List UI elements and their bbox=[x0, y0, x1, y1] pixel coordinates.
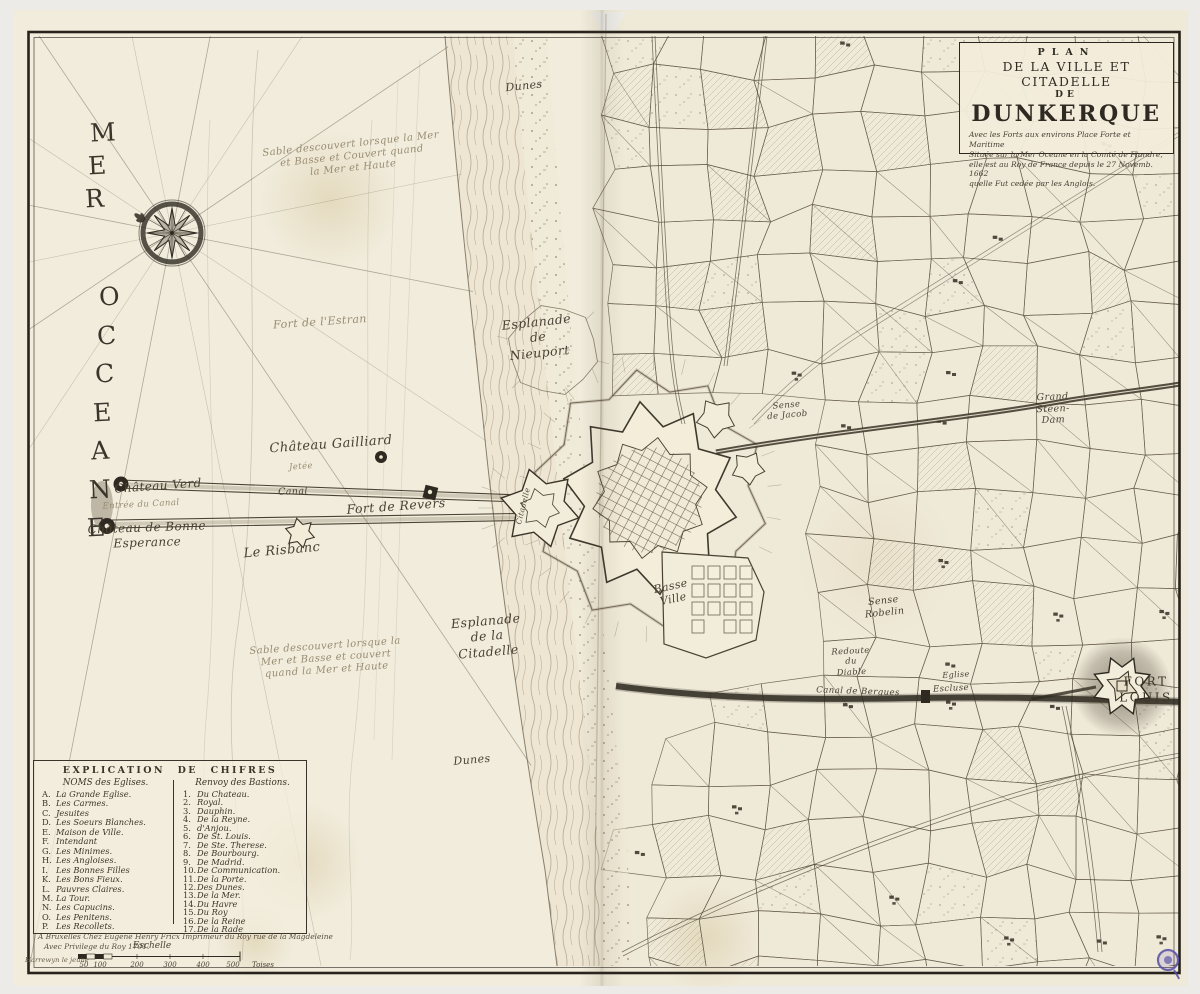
farm-building bbox=[792, 372, 797, 375]
farm-building bbox=[841, 424, 846, 427]
basse-ville-block bbox=[692, 584, 704, 597]
page-fold bbox=[580, 10, 624, 986]
farm-building bbox=[993, 236, 998, 239]
field-parcel bbox=[1191, 638, 1200, 693]
fort-louis bbox=[1072, 637, 1172, 737]
field-parcel bbox=[1190, 826, 1200, 877]
field-parcel bbox=[1190, 691, 1200, 726]
map-stage: MEROCCEANE DunesSable descouvert lorsque… bbox=[0, 0, 1200, 994]
farm-building bbox=[1159, 610, 1164, 613]
farm-building bbox=[1156, 935, 1161, 938]
basse-ville-block bbox=[692, 620, 704, 633]
farm-building bbox=[840, 41, 845, 44]
farm-building bbox=[1004, 936, 1009, 939]
farm-building bbox=[1050, 705, 1055, 708]
farm-building bbox=[1053, 613, 1058, 616]
basse-ville-block bbox=[724, 584, 736, 597]
farm-building bbox=[945, 662, 950, 665]
basse-ville-block bbox=[692, 566, 704, 579]
field-parcel bbox=[971, 488, 1033, 550]
field-parcel bbox=[1140, 82, 1198, 130]
basse-ville-block bbox=[708, 584, 720, 597]
basse-ville-block bbox=[740, 602, 752, 615]
farm-building bbox=[843, 703, 848, 706]
basse-ville-block bbox=[692, 602, 704, 615]
basse-ville-block bbox=[724, 602, 736, 615]
basse-ville-block bbox=[708, 602, 720, 615]
farm-building bbox=[1102, 142, 1107, 145]
field-parcel bbox=[918, 442, 976, 492]
basse-ville-block bbox=[740, 584, 752, 597]
field-parcel bbox=[868, 539, 915, 591]
farm-building bbox=[889, 896, 894, 899]
farm-building bbox=[732, 805, 737, 808]
field-parcel bbox=[1187, 875, 1200, 922]
field-parcel bbox=[1196, 448, 1200, 498]
map-engraving bbox=[0, 0, 1200, 994]
basse-ville-block bbox=[724, 566, 736, 579]
basse-ville-block bbox=[724, 620, 736, 633]
farm-building bbox=[953, 279, 958, 282]
farm-building bbox=[635, 851, 640, 854]
field-parcel bbox=[1188, 167, 1200, 214]
farm-building bbox=[946, 371, 951, 374]
basse-ville-block bbox=[708, 566, 720, 579]
field-parcel bbox=[973, 581, 1034, 647]
basse-ville-block bbox=[740, 566, 752, 579]
farm-building bbox=[938, 559, 943, 562]
basse-ville-block bbox=[740, 620, 752, 633]
